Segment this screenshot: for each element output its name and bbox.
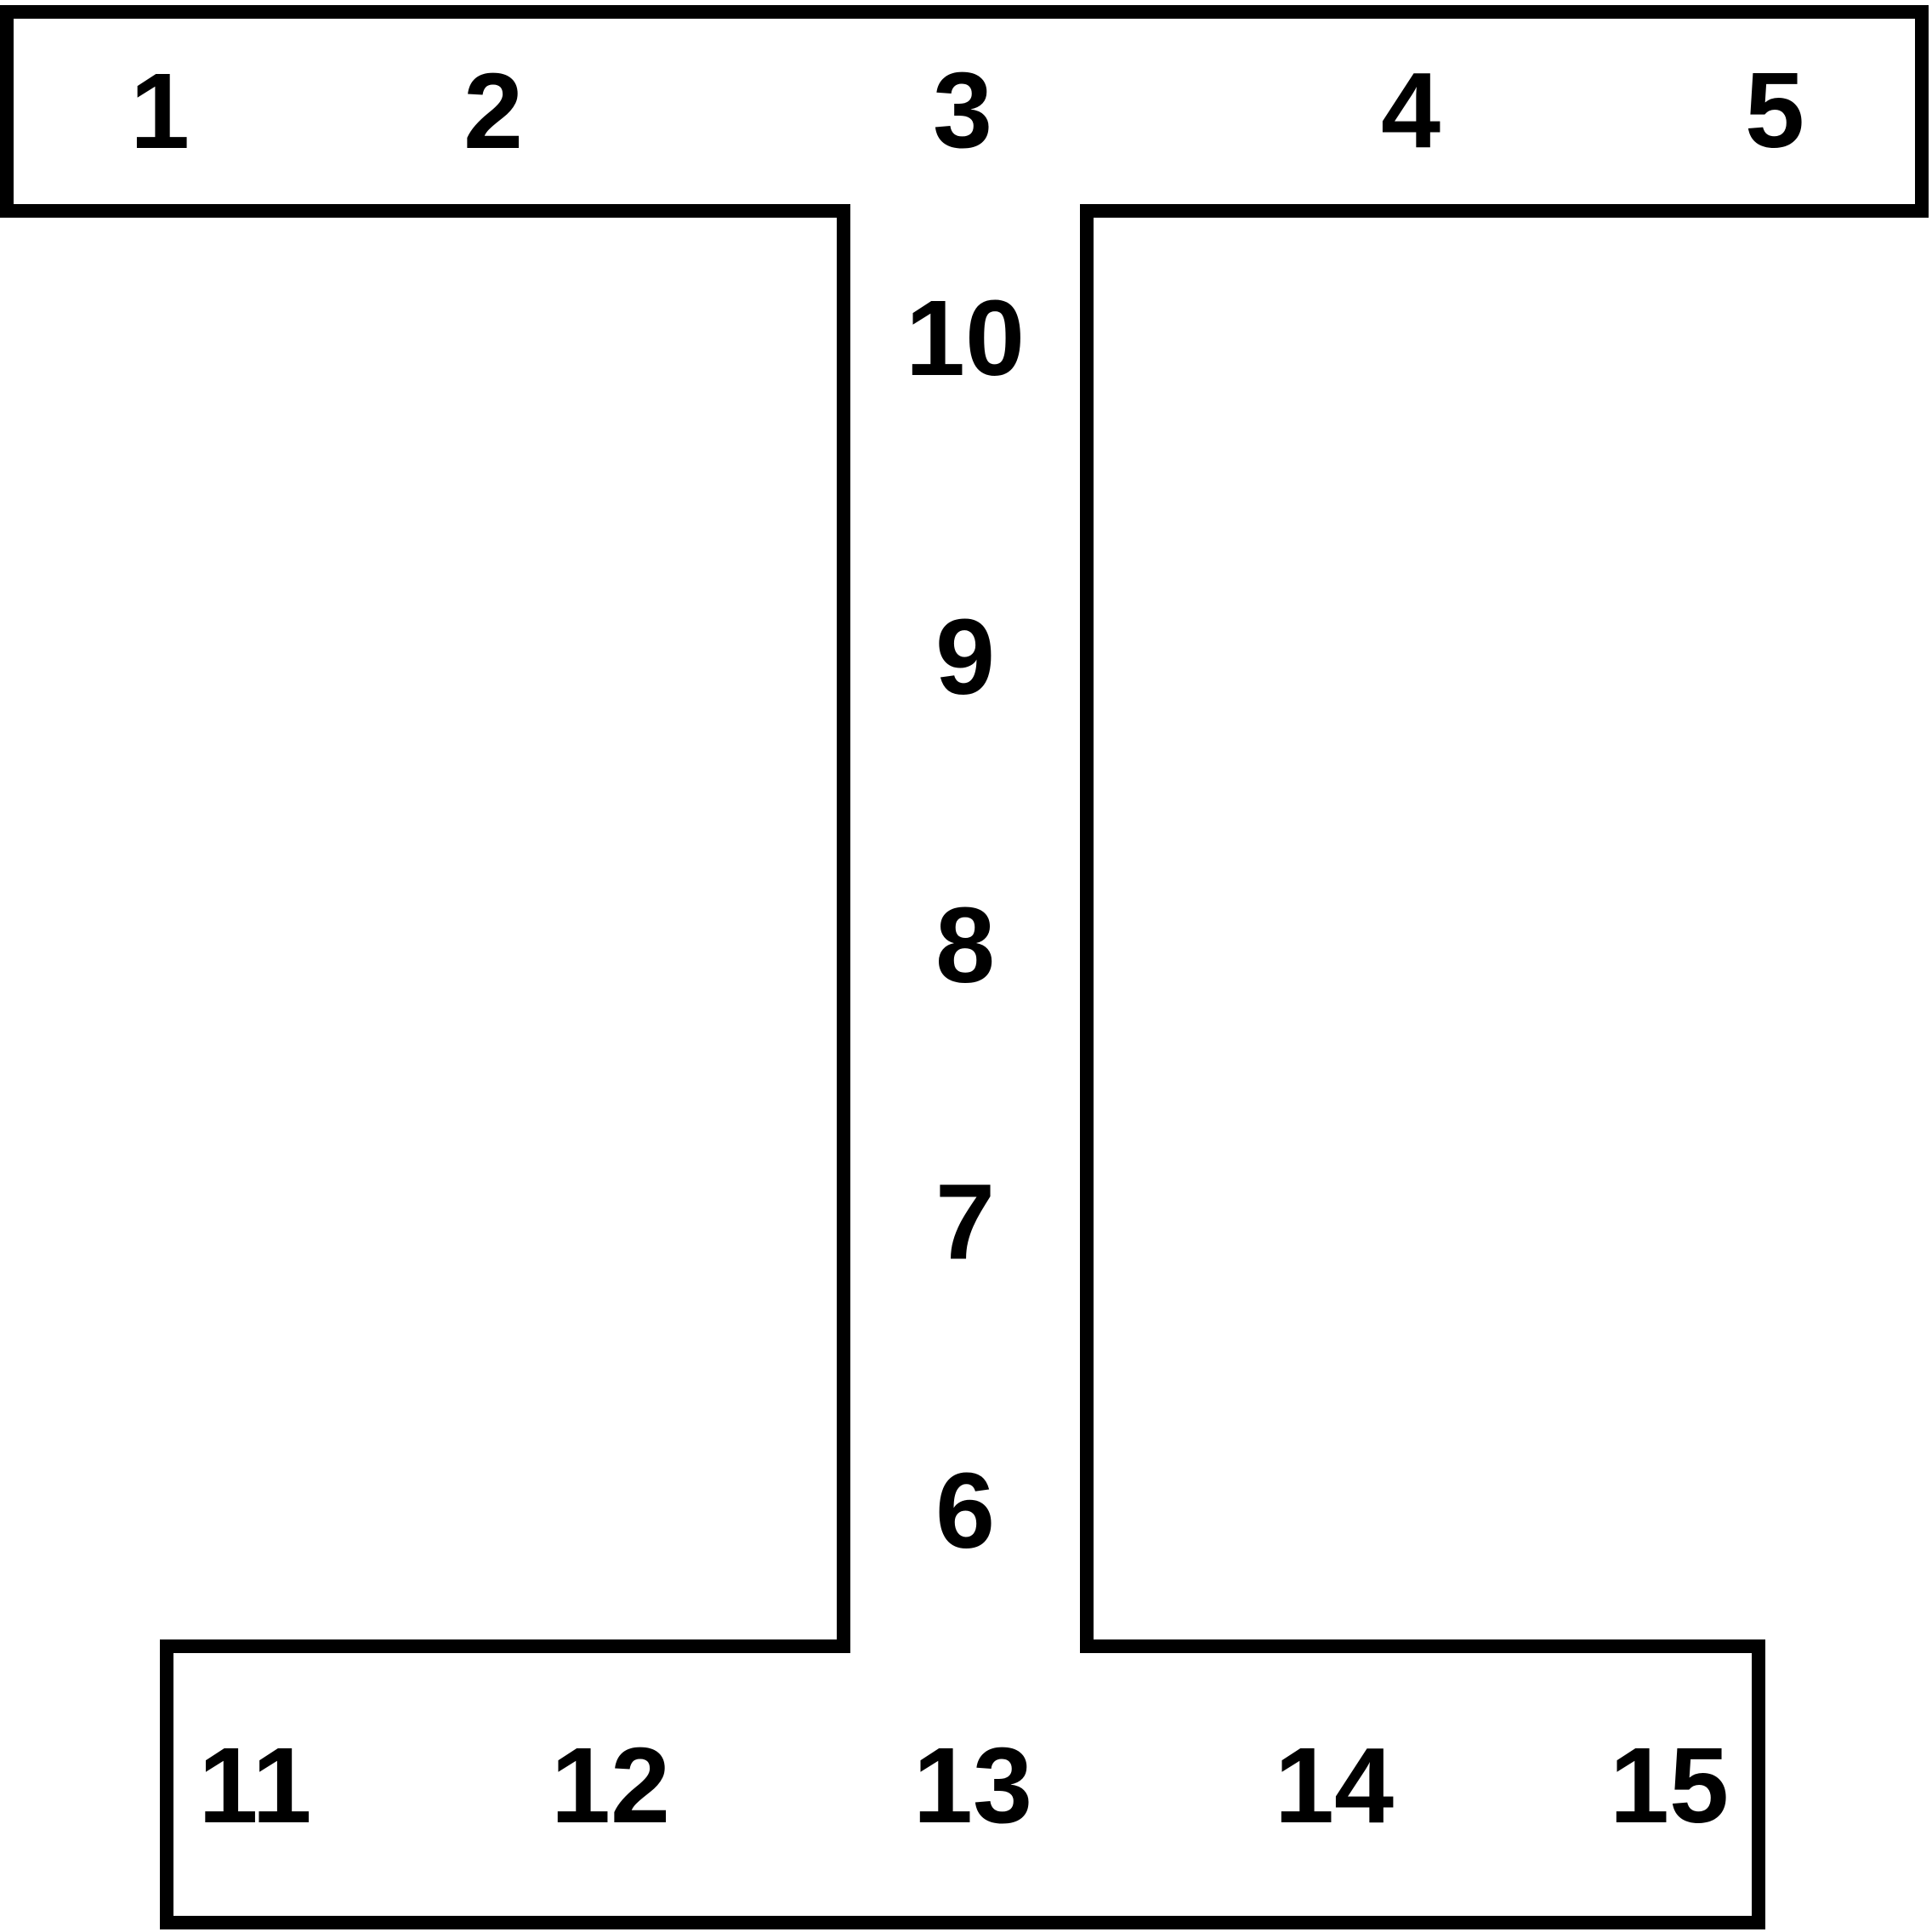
point-label-3: 3: [933, 57, 992, 164]
point-label-15: 15: [1610, 1732, 1729, 1839]
point-label-12: 12: [551, 1732, 670, 1839]
point-label-11: 11: [198, 1732, 311, 1839]
point-label-2: 2: [463, 58, 523, 165]
point-label-5: 5: [1745, 57, 1804, 164]
point-label-8: 8: [935, 892, 995, 999]
i-beam-diagram: 1 2 3 4 5 10 9 8 7 6 11 12 13 14 15: [0, 0, 1932, 1932]
point-label-7: 7: [935, 1168, 995, 1276]
point-label-4: 4: [1381, 57, 1440, 164]
point-label-14: 14: [1275, 1732, 1394, 1839]
point-label-9: 9: [935, 604, 995, 711]
point-label-10: 10: [906, 285, 1025, 392]
point-label-6: 6: [935, 1458, 995, 1565]
point-label-13: 13: [913, 1732, 1032, 1839]
point-label-1: 1: [130, 58, 190, 165]
